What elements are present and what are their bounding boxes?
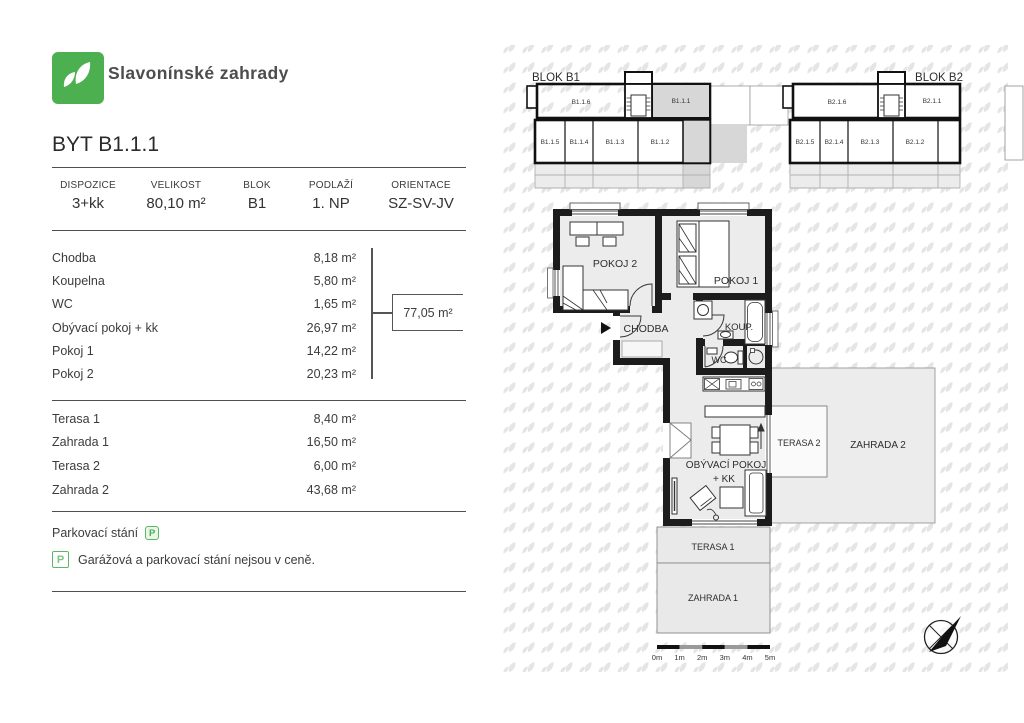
scale-tick: 3m: [720, 653, 730, 662]
divider: [52, 511, 466, 512]
divider: [52, 400, 466, 401]
room-row: Koupelna5,80 m²: [52, 269, 356, 292]
label-terasa2: TERASA 2: [777, 438, 820, 448]
brand-name: Slavonínské zahrady: [108, 63, 289, 84]
scale-tick: 0m: [652, 653, 662, 662]
scale-tick: 5m: [765, 653, 775, 662]
parking-note: Garážová a parkovací stání nejsou v ceně…: [78, 553, 315, 567]
b2-stairwell-icon: [878, 72, 905, 118]
b2-unit-label: B2.1.4: [825, 139, 844, 146]
room-row: WC1,65 m²: [52, 293, 356, 316]
b2-unit-label: B2.1.2: [906, 139, 925, 146]
room-row: Obývací pokoj + kk26,97 m²: [52, 316, 356, 339]
b1-connector-top: [707, 86, 750, 125]
leaf-icon: [60, 60, 96, 96]
b1-unit-label: B1.1.5: [541, 139, 560, 146]
b2-unit-label: B2.1.3: [861, 139, 880, 146]
b2-unit-label: B2.1.1: [923, 98, 942, 105]
spec-blok: BLOK B1: [228, 180, 286, 212]
room-row: Pokoj 114,22 m²: [52, 339, 356, 362]
label-chodba: CHODBA: [624, 323, 669, 335]
room-area-list: Chodba8,18 m² Koupelna5,80 m² WC1,65 m² …: [52, 246, 356, 386]
brand-logo: [52, 52, 104, 104]
outdoor-area-list: Terasa 18,40 m² Zahrada 116,50 m² Terasa…: [52, 407, 356, 501]
chodba-niche: [622, 341, 662, 357]
spec-podlazi: PODLAŽÍ 1. NP: [286, 180, 376, 212]
outdoor-row: Terasa 18,40 m²: [52, 407, 356, 431]
parking-icon: P: [145, 526, 159, 540]
divider: [52, 167, 466, 168]
label-koupelna: KOUP.: [725, 322, 753, 333]
b1-unit-label: B1.1.4: [570, 139, 589, 146]
scale-tick: 4m: [742, 653, 752, 662]
scale-tick: 2m: [697, 653, 707, 662]
spec-dispozice: DISPOZICE 3+kk: [52, 180, 124, 212]
parking-icon: P: [52, 551, 69, 568]
outdoor-row: Terasa 26,00 m²: [52, 454, 356, 478]
parking-label: Parkovací stání: [52, 526, 138, 540]
label-pokoj2: POKOJ 2: [593, 258, 638, 270]
label-terasa1: TERASA 1: [691, 542, 734, 552]
outdoor-row: Zahrada 116,50 m²: [52, 431, 356, 455]
brochure-page: Slavonínské zahrady BYT B1.1.1 DISPOZICE…: [0, 0, 1024, 723]
b1-unit-label: B1.1.2: [651, 139, 670, 146]
block-b1-label: BLOK B1: [532, 72, 580, 84]
total-bracket-connector: [372, 312, 392, 314]
b2-left-stub: [783, 86, 793, 108]
label-kk: + KK: [713, 474, 735, 485]
label-zahrada2: ZAHRADA 2: [850, 440, 906, 451]
outdoor-row: Zahrada 243,68 m²: [52, 478, 356, 502]
b2-unit-label: B2.1.5: [796, 139, 815, 146]
parking-note-row: P Garážová a parkovací stání nejsou v ce…: [52, 551, 315, 568]
b1-stairwell-icon: [625, 72, 652, 118]
block-b2-label: BLOK B2: [915, 72, 963, 84]
apartment-title: BYT B1.1.1: [52, 133, 159, 157]
b1-left-stub: [527, 86, 537, 108]
parking-label-row: Parkovací stání P: [52, 526, 159, 540]
floorplan-svg: BLOK B1: [500, 0, 1024, 723]
floorplan-panel: BLOK B1: [500, 0, 1024, 723]
b1-unit-label: B1.1.3: [606, 139, 625, 146]
divider: [52, 230, 466, 231]
label-pokoj1: POKOJ 1: [714, 275, 759, 287]
b2-right-hint: [1005, 86, 1023, 160]
b1-unit-label: B1.1.1: [672, 98, 691, 105]
spec-table: DISPOZICE 3+kk VELIKOST 80,10 m² BLOK B1…: [52, 180, 466, 212]
interior-total: 77,05 m²: [392, 294, 463, 331]
info-panel: Slavonínské zahrady BYT B1.1.1 DISPOZICE…: [0, 0, 500, 723]
divider: [52, 591, 466, 592]
total-bracket-line: [371, 248, 373, 379]
b1-unit-label: B1.1.6: [572, 99, 591, 106]
room-row: Chodba8,18 m²: [52, 246, 356, 269]
b1-unit-1-lower: [683, 120, 710, 163]
spec-orientace: ORIENTACE SZ-SV-JV: [376, 180, 466, 212]
spec-velikost: VELIKOST 80,10 m²: [124, 180, 228, 212]
label-obyvaci: OBÝVACÍ POKOJ: [686, 458, 766, 471]
b2-terraces: [790, 163, 960, 188]
label-wc: WC: [712, 355, 727, 365]
b2-unit-label: B2.1.6: [828, 99, 847, 106]
room-row: Pokoj 220,23 m²: [52, 362, 356, 385]
label-zahrada1: ZAHRADA 1: [688, 593, 738, 603]
b1-garden-gray: [707, 125, 747, 163]
scale-tick: 1m: [674, 653, 684, 662]
